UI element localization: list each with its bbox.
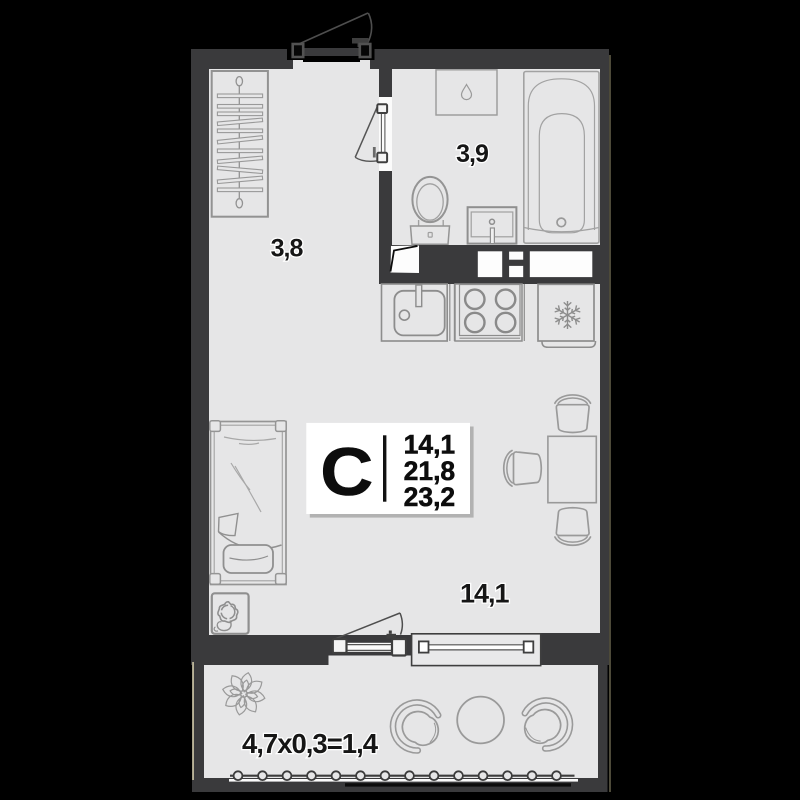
- svg-text:14,1: 14,1: [460, 579, 510, 609]
- svg-text:3,8: 3,8: [271, 234, 304, 262]
- svg-text:4,7х0,3=1,4: 4,7х0,3=1,4: [242, 728, 379, 759]
- svg-text:23,2: 23,2: [404, 482, 456, 512]
- svg-text:С: С: [320, 433, 373, 509]
- svg-text:3,9: 3,9: [456, 140, 488, 168]
